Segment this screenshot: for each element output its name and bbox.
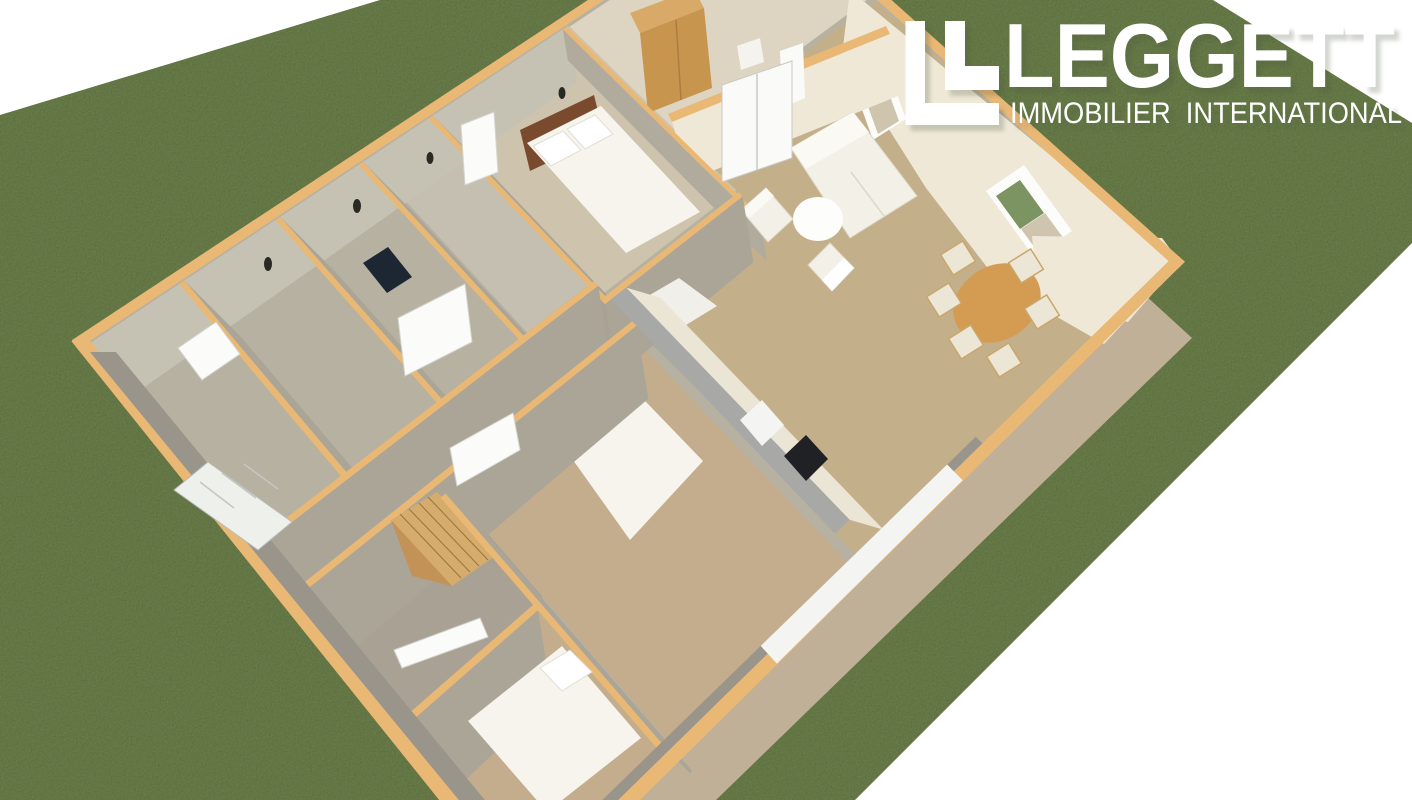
svg-text:IMMOBILIER INTERNATIONAL: IMMOBILIER INTERNATIONAL xyxy=(1010,97,1402,130)
svg-text:LEGGETT: LEGGETT xyxy=(1004,6,1395,107)
